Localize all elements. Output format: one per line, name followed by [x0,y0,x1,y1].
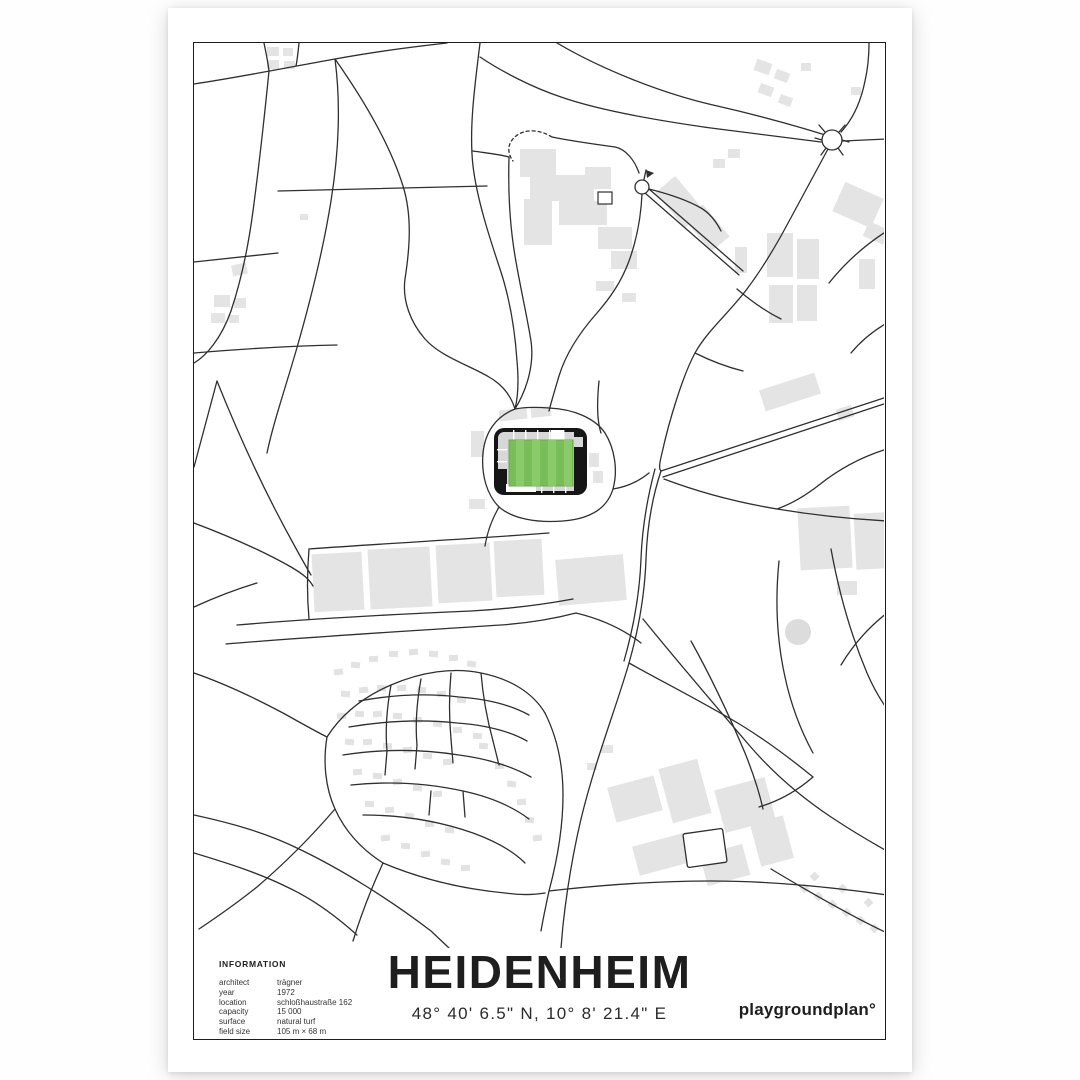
gray-dot [785,619,811,645]
poster-title: HEIDENHEIM [194,949,885,995]
info-row-field-size: field size 105 m × 68 m [219,1027,352,1037]
outlined-building [683,828,727,867]
stadium [494,428,587,495]
outlined-building [598,192,612,204]
brand-logo: playgroundplan° [739,1000,876,1020]
info-value: 105 m × 68 m [277,1027,326,1037]
poster-frame: INFORMATION architect trägner year 1972 … [193,42,886,1040]
info-label: field size [219,1027,277,1037]
map-svg [194,43,884,948]
page: INFORMATION architect trägner year 1972 … [0,0,1080,1080]
map-poster: INFORMATION architect trägner year 1972 … [168,8,912,1072]
